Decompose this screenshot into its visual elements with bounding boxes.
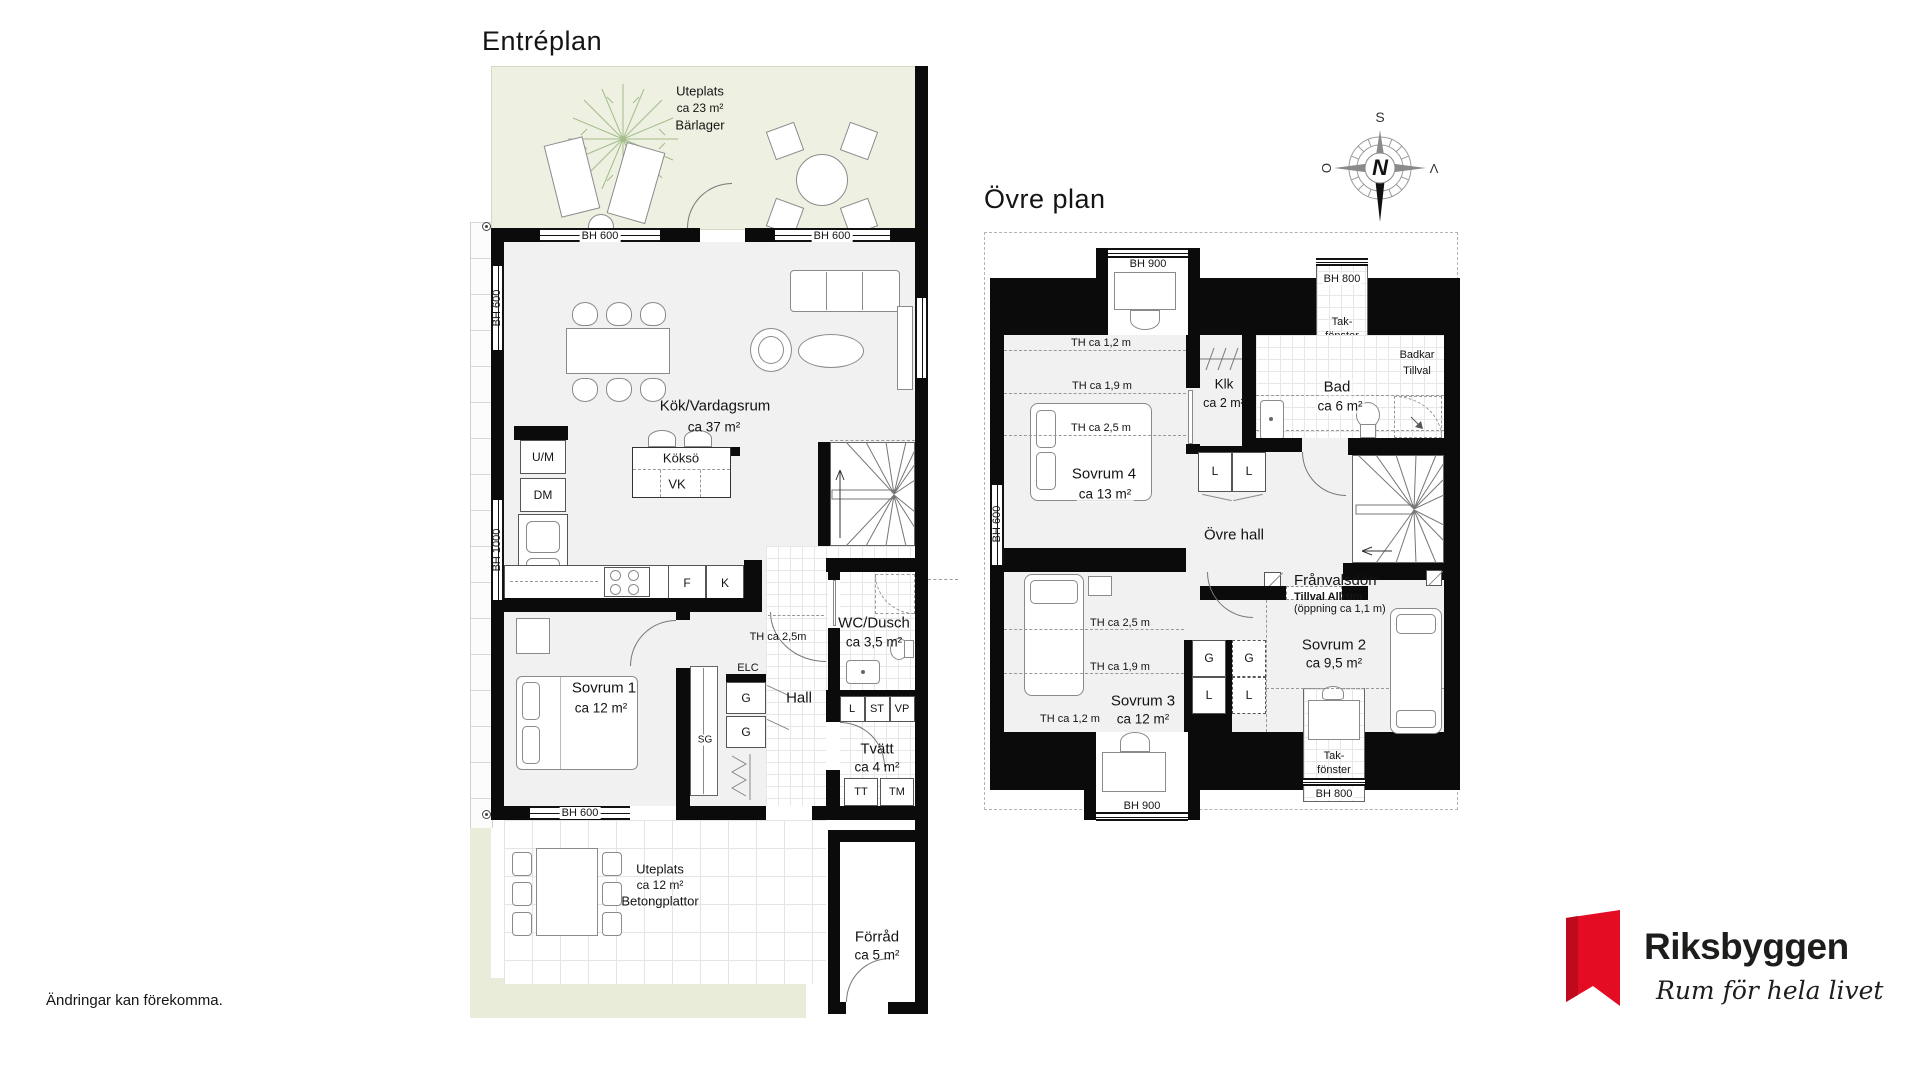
compass-s: S [1375,109,1384,125]
desk-chair [1130,310,1160,330]
headroom-line [830,440,915,441]
basin-drain [1269,417,1273,421]
unit-label-g: G [741,725,750,739]
counter-centerline [510,581,598,582]
unit-label-l: L [1246,464,1253,478]
area-label-bedroom1: ca 12 m² [575,701,628,716]
desk [1114,272,1176,310]
drain-marker [482,222,491,231]
sliding-door-line [703,668,704,794]
wall [514,426,568,440]
unit-label-dm: DM [534,488,553,502]
th-line [1004,629,1184,630]
compass-n: N [1372,155,1389,180]
unit-label-f: F [683,576,690,590]
outdoor-chair [512,852,532,876]
bed-footboard [1396,710,1436,728]
unit-label-tt: TT [854,786,867,798]
sliding-door-leaf [1188,390,1193,444]
th-label: TH ca 1,2 m [1038,713,1102,725]
wall [915,66,928,230]
wall [812,806,915,820]
door-opening [846,1002,888,1014]
unit-label-sg: SG [697,735,713,746]
unit-label-vp: VP [895,703,910,715]
bedside-table [1088,576,1112,596]
burner [610,570,621,581]
island-label: Köksö [663,451,699,466]
area-label-kitchen: ca 37 m² [688,420,741,435]
sofa-cushion-line [862,272,863,310]
unit-label-l: L [1246,688,1253,702]
room-label-upper-hall: Övre hall [1204,527,1264,544]
door-leaf [833,580,836,626]
th-line [1004,350,1186,351]
area-label-bath: ca 6 m² [1315,399,1364,414]
window-label: BH 600 [991,506,1003,543]
dining-table [566,328,670,374]
window [915,298,928,378]
stairs-icon [1352,455,1444,563]
wall [1192,714,1232,732]
room-label-bedroom4: Sovrum 4 [1070,466,1138,483]
area-label-storage: ca 5 m² [854,948,899,963]
patio-table [796,154,848,206]
wall [676,806,766,820]
outdoor-table [536,848,598,936]
window-label: BH 600 [491,290,503,327]
th-label: TH ca 2,5m [750,631,807,643]
toilet-tank [904,640,914,658]
window-label: BH 1000 [491,529,503,572]
coffee-table [798,334,864,368]
terrace-bottom-name: Uteplats [636,862,684,877]
room-label-hall: Hall [786,690,812,707]
room-label-bedroom3: Sovrum 3 [1111,693,1175,710]
desk [1308,700,1360,740]
area-label-wc: ca 3,5 m² [846,635,902,650]
option-door-note: (öppning ca 1,1 m) [1294,603,1386,615]
island-line [700,470,701,497]
room-label-bedroom2: Sovrum 2 [1302,637,1366,654]
room-label-storage: Förråd [855,929,899,946]
th-label: TH ca 2,5 m [1088,617,1152,629]
door-opening [826,722,840,770]
wall [915,378,928,820]
th-line [1004,393,1186,394]
option-door-note: Tillval Allrum [1294,591,1362,603]
area-label-bedroom3: ca 12 m² [1117,712,1170,727]
desk-chair [1120,732,1150,752]
wall [1184,640,1192,732]
pillow [1036,410,1056,448]
wall [826,558,915,572]
wall [1444,335,1460,732]
compass-v: V [1429,161,1438,176]
brand-name: Riksbyggen [1644,926,1849,968]
desk [1102,752,1166,792]
unit-label-elc: ELC [737,662,758,674]
tv-bench [897,306,913,390]
wall [1084,732,1096,820]
compass-icon: N S O V [1318,100,1442,232]
option-door-label: Frånvalsdörr [1294,572,1378,589]
arrow-icon [1408,414,1430,436]
wall [504,598,744,612]
bath-option-label: Badkar [1400,349,1435,361]
th-label: TH ca 1,9 m [1070,380,1134,392]
window-label: BH 900 [1123,800,1162,812]
garden-green-bottom [470,978,806,1018]
outdoor-chair [602,882,622,906]
island-line [633,469,730,470]
room-label-wc: WC/Dusch [838,615,910,632]
skylight-label: Tak- [1332,316,1353,328]
burner [628,584,639,595]
burner [610,584,621,595]
island-handle [731,447,740,456]
wall [818,442,830,546]
riksbyggen-logo-icon [1562,908,1628,1012]
pillow [1030,580,1078,604]
floor2-title: Övre plan [984,184,1106,215]
wall [745,228,775,242]
basin-drain [861,670,865,674]
wall [491,806,530,820]
island-line [660,470,661,497]
window-label: BH 600 [580,230,621,242]
lounge-chair-seat [758,336,784,364]
unit-label-tm: TM [889,786,905,798]
window [1303,778,1365,786]
bath-option-label: Tillval [1403,365,1431,377]
wall [1188,248,1200,335]
wall [828,830,928,842]
th-label: TH ca 1,2 m [1069,337,1133,349]
wall [1096,248,1108,335]
wall [1188,732,1200,820]
wall [726,674,766,682]
wall [1188,278,1316,335]
terrace-top-surface: Bärlager [675,118,724,133]
wall [915,228,928,298]
wall [491,350,504,500]
outdoor-chair [602,912,622,936]
room-label-closet: Klk [1215,377,1234,392]
area-label-closet: ca 2 m² [1203,396,1245,410]
optional-wall-line [1266,600,1267,732]
burner [628,570,639,581]
wall [491,228,504,266]
wall [744,560,762,612]
shower [875,574,915,614]
garden-slab-strip [470,222,493,828]
dining-chair [606,378,632,402]
area-label-bedroom2: ca 9,5 m² [1306,656,1362,671]
island-vk-label: VK [668,477,685,492]
room-label-laundry: Tvätt [860,741,893,758]
area-label-bedroom4: ca 13 m² [1077,487,1134,502]
skylight-label: fönster [1317,764,1351,776]
wall [1365,732,1460,790]
pillow [1396,614,1436,634]
th-line [768,615,824,616]
unit-label-g: G [1244,651,1253,665]
th-label: TH ca 1,9 m [1088,661,1152,673]
wall [990,335,1004,485]
wall [1368,278,1460,335]
section-line [928,579,958,580]
room-label-bedroom1: Sovrum 1 [572,680,636,697]
sliding-wardrobe [690,666,718,796]
dining-chair [572,302,598,326]
bar-stool [648,430,676,447]
pillow [1036,452,1056,490]
wardrobe [516,618,550,654]
unit-label-l: L [849,703,855,715]
stairs-icon [830,442,915,546]
drain-marker [482,810,491,819]
dining-chair [640,302,666,326]
terrace-top-name: Uteplats [676,84,724,99]
window-label: BH 600 [560,807,601,819]
coat-hooks-icon [728,754,766,800]
window-label: BH 900 [1130,258,1167,270]
wall [1348,438,1444,455]
window-label: BH 800 [1315,788,1354,800]
unit-label-um: U/M [532,450,554,464]
sofa-cushion-line [826,272,827,310]
window-label: BH 600 [812,230,853,242]
th-line [1004,673,1184,674]
outdoor-chair [512,882,532,906]
disclaimer-text: Ändringar kan förekomma. [46,992,223,1009]
dining-chair [572,378,598,402]
wall [1188,732,1303,790]
floorplan-sheet: Entréplan Uteplats ca 23 m² Bärlager BH … [0,0,1920,1080]
wall [1004,548,1186,572]
dining-chair [606,302,632,326]
skylight-label: Tak- [1324,750,1345,762]
toilet-tank [1360,424,1376,438]
unit-label-g: G [1204,651,1213,665]
sofa [790,270,900,312]
door-opening [676,620,690,668]
wall [990,278,1108,335]
wall [1242,335,1256,446]
floor1-title: Entréplan [482,26,602,57]
unit-label-l: L [1212,464,1219,478]
terrace-bottom-area: ca 12 m² [637,878,684,892]
wall [1256,438,1302,452]
th-label: TH ca 2,5 m [1069,422,1133,434]
blanket-line [560,677,561,769]
window [1316,258,1368,266]
unit-label-l: L [1206,688,1213,702]
window-label: BH 800 [1323,273,1362,285]
wall [1186,335,1200,388]
terrace-top-area: ca 23 m² [677,101,724,115]
wall [990,565,1004,732]
pillow [522,682,540,720]
unit-label-g: G [741,691,750,705]
unit-label-k: K [721,576,729,590]
hanger-rail-icon [1200,346,1242,372]
window [1096,812,1188,821]
brand-tagline: Rum för hela livet [1656,976,1883,1005]
outdoor-chair [602,852,622,876]
wall [491,600,504,820]
area-label-laundry: ca 4 m² [854,760,899,775]
unit-label-st: ST [870,703,884,715]
sink-bowl [526,521,560,553]
garden-green-left [470,828,491,986]
pillow [522,726,540,764]
room-label-kitchen: Kök/Vardagsrum [660,398,771,415]
window [1108,248,1188,258]
wall [990,732,1096,790]
room-label-bath: Bad [1322,379,1353,396]
outdoor-chair [512,912,532,936]
wall [660,228,700,242]
compass-o: O [1319,163,1334,173]
wall [915,806,928,1014]
wall [828,830,840,1014]
terrace-bottom-surface: Betongplattor [621,894,698,909]
th-line [1004,435,1186,436]
